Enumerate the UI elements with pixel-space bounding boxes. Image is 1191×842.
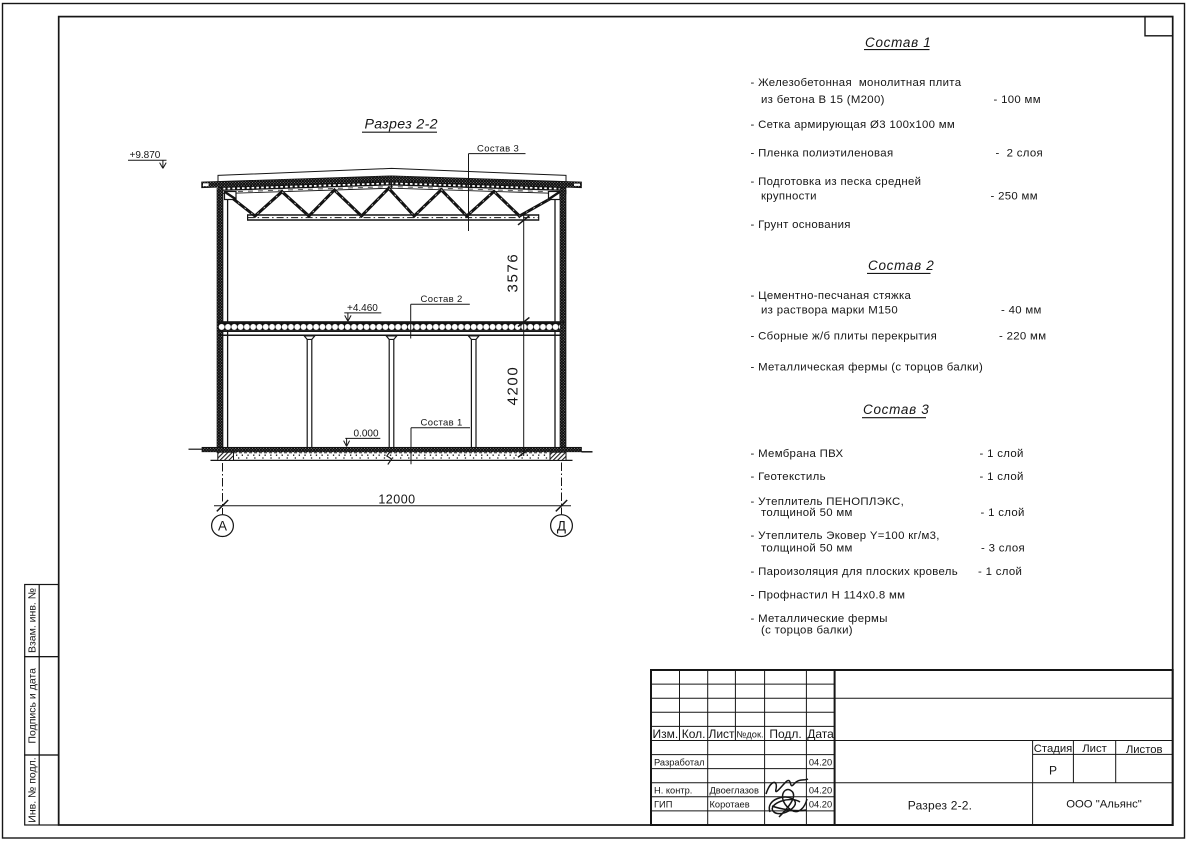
svg-text:Кол.: Кол. <box>682 727 706 741</box>
svg-text:А: А <box>218 518 227 533</box>
svg-text:Состав 1: Состав 1 <box>421 418 463 429</box>
svg-text:+4.460: +4.460 <box>347 303 378 314</box>
svg-text:- Металлические фермы: - Металлические фермы <box>751 613 888 625</box>
svg-text:Н. контр.: Н. контр. <box>654 786 692 796</box>
svg-text:+9.870: +9.870 <box>130 150 161 161</box>
svg-text:- 1 слой: - 1 слой <box>981 507 1025 519</box>
svg-text:Д: Д <box>557 518 566 533</box>
svg-text:- Утеплитель ПЕНОПЛЭКС,: - Утеплитель ПЕНОПЛЭКС, <box>751 496 905 508</box>
svg-text:Лист: Лист <box>708 727 735 741</box>
svg-text:- 100 мм: - 100 мм <box>994 94 1041 106</box>
svg-text:- 1 слой: - 1 слой <box>978 566 1022 578</box>
svg-text:- 40 мм: - 40 мм <box>1001 304 1042 316</box>
svg-text:Дата: Дата <box>807 727 834 741</box>
svg-text:04.20: 04.20 <box>809 800 832 810</box>
svg-text:Р: Р <box>1049 764 1057 778</box>
svg-text:Листов: Листов <box>1126 744 1163 756</box>
svg-text:- Пленка полиэтиленовая: - Пленка полиэтиленовая <box>751 148 894 160</box>
svg-text:- Сетка армирующая Ø3 100х100: - Сетка армирующая Ø3 100х100 мм <box>751 119 956 131</box>
svg-text:- 1 слой: - 1 слой <box>980 471 1024 483</box>
svg-text:толщиной 50 мм: толщиной 50 мм <box>761 542 853 554</box>
svg-text:Разрез 2-2.: Разрез 2-2. <box>908 798 972 812</box>
svg-text:Изм.: Изм. <box>652 727 678 741</box>
svg-text:Подл.: Подл. <box>769 727 801 741</box>
svg-text:Взам. инв. №: Взам. инв. № <box>27 588 39 653</box>
svg-text:Состав 3: Состав 3 <box>477 143 519 154</box>
svg-text:- Цементно-песчаная стяжка: - Цементно-песчаная стяжка <box>751 290 912 302</box>
svg-text:Инв. № подл.: Инв. № подл. <box>27 757 39 822</box>
svg-text:Разрез 2-2: Разрез 2-2 <box>365 117 438 133</box>
svg-text:толщиной 50 мм: толщиной 50 мм <box>761 507 853 519</box>
svg-text:- Металлическая фермы (с торцо: - Металлическая фермы (с торцов балки) <box>751 361 984 373</box>
svg-text:из раствора марки М150: из раствора марки М150 <box>761 304 898 316</box>
svg-text:Стадия: Стадия <box>1034 743 1073 755</box>
svg-text:4200: 4200 <box>504 366 521 406</box>
svg-text:Состав 3: Состав 3 <box>863 402 930 417</box>
svg-text:0.000: 0.000 <box>354 428 379 439</box>
svg-text:- 3 слоя: - 3 слоя <box>981 542 1025 554</box>
svg-text:- 250 мм: - 250 мм <box>991 190 1038 202</box>
svg-text:- Подготовка из песка средней: - Подготовка из песка средней <box>751 176 922 188</box>
svg-text:04.20: 04.20 <box>809 757 832 767</box>
svg-text:Разработал: Разработал <box>654 757 705 767</box>
svg-text:- Грунт основания: - Грунт основания <box>751 219 851 231</box>
svg-text:- 1 слой: - 1 слой <box>980 448 1024 460</box>
svg-text:- 2 слоя: - 2 слоя <box>996 148 1043 160</box>
svg-text:- Железобетонная монолитная п: - Железобетонная монолитная плита <box>751 77 962 89</box>
svg-text:Лист: Лист <box>1082 743 1107 755</box>
svg-text:(с торцов балки): (с торцов балки) <box>761 625 853 637</box>
svg-text:ГИП: ГИП <box>654 800 672 810</box>
svg-text:- Мембрана ПВХ: - Мембрана ПВХ <box>751 448 844 460</box>
svg-text:- Утеплитель Эковер Y=100 кг/м: - Утеплитель Эковер Y=100 кг/м3, <box>751 530 940 542</box>
svg-text:12000: 12000 <box>378 493 415 507</box>
svg-text:Коротаев: Коротаев <box>710 800 750 810</box>
svg-text:Двоеглазов: Двоеглазов <box>710 786 759 796</box>
svg-text:- Сборные ж/б плиты перекрытия: - Сборные ж/б плиты перекрытия <box>751 331 938 343</box>
svg-text:из бетона В 15 (М200): из бетона В 15 (М200) <box>761 94 885 106</box>
svg-text:- Профнастил Н 114х0.8 мм: - Профнастил Н 114х0.8 мм <box>751 590 906 602</box>
svg-text:- 220 мм: - 220 мм <box>999 331 1046 343</box>
svg-text:- Геотекстиль: - Геотекстиль <box>751 471 826 483</box>
svg-text:крупности: крупности <box>761 190 817 202</box>
svg-text:Подпись и дата: Подпись и дата <box>27 668 39 744</box>
svg-text:Состав 2: Состав 2 <box>868 258 935 273</box>
svg-text:Состав 1: Состав 1 <box>865 35 932 50</box>
svg-text:3576: 3576 <box>504 253 521 293</box>
svg-text:04.20: 04.20 <box>809 786 832 796</box>
svg-text:Состав 2: Состав 2 <box>421 294 463 305</box>
svg-text:ООО "Альянс": ООО "Альянс" <box>1066 799 1142 811</box>
svg-text:- Пароизоляция для плоских кро: - Пароизоляция для плоских кровель <box>751 566 959 578</box>
svg-text:№док.: №док. <box>736 729 763 739</box>
